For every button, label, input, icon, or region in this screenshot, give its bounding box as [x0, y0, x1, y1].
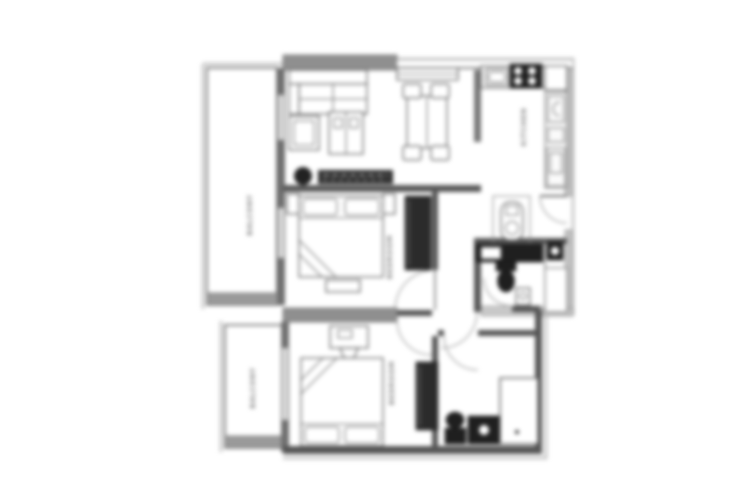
dresser-lower	[330, 326, 368, 348]
wall-kitchen-divider	[474, 70, 481, 142]
door-arc-bedroom-middle	[395, 270, 435, 310]
wall-mid-thick	[283, 308, 397, 322]
burner-2	[528, 67, 536, 75]
label-balcony-top: BALCONY	[246, 194, 254, 236]
dining-chair-2	[431, 84, 449, 98]
bathroom-upper	[476, 242, 567, 312]
burner-4	[528, 77, 536, 85]
wall-bedroom-mid-bottom	[397, 310, 432, 316]
door-arc-bedroom-lower	[397, 320, 432, 355]
entry-door-arc	[540, 196, 567, 223]
doors	[395, 270, 512, 370]
toilet-lower-bowl	[446, 412, 464, 428]
label-bedroom-lower: BEDROOM	[388, 361, 396, 405]
wardrobe-lower	[416, 362, 438, 430]
dining-chair-3	[403, 146, 421, 160]
wall-bath-lower-top-b	[478, 330, 540, 336]
door-arc-hall	[441, 312, 477, 348]
dining-chair-4	[431, 146, 449, 160]
bed-lower	[301, 358, 383, 446]
wall-bottom-exterior	[283, 446, 542, 454]
tv-console	[318, 170, 393, 184]
fridge	[545, 66, 567, 90]
dining-chair-1	[403, 84, 421, 98]
toilet-lower-tank	[445, 428, 466, 444]
living-room	[289, 68, 458, 185]
shower	[500, 378, 538, 444]
floor-plan-canvas: BALCONY KITCHEN BEDROOM BEDROOM BALCONY	[0, 0, 750, 500]
toilet-upper-bowl	[498, 270, 515, 292]
burner-3	[514, 77, 522, 85]
balcony-top-rail	[207, 293, 283, 305]
sofa-armrest	[289, 84, 299, 114]
shaft-lower	[545, 268, 567, 312]
burner-1	[514, 67, 522, 75]
vanity-lower-sink	[479, 425, 489, 435]
balcony-bottom-rail	[225, 436, 287, 448]
basin-small	[516, 288, 530, 305]
wall-living-bedroom	[283, 185, 481, 192]
label-kitchen: KITCHEN	[520, 108, 528, 147]
bathroom-lower	[445, 378, 538, 444]
toilet-upper-tank	[496, 262, 516, 271]
bedroom-middle	[287, 194, 431, 292]
entry-hall	[501, 196, 567, 240]
door-arc-bathroom-lower	[444, 336, 478, 370]
bedroom-lower	[301, 326, 438, 446]
sofa-back	[289, 70, 367, 84]
vanity-upper-sink	[481, 247, 501, 259]
wall-top-thick	[283, 55, 397, 70]
balcony-top-walls	[207, 68, 277, 305]
label-balcony-bottom: BALCONY	[249, 367, 257, 409]
wall-bedroom-corridor	[432, 192, 438, 270]
plant-icon	[294, 167, 312, 185]
label-bedroom-middle: BEDROOM	[386, 235, 394, 279]
floor-plan-svg: BALCONY KITCHEN BEDROOM BEDROOM BALCONY	[0, 0, 750, 500]
nightstand-left	[287, 194, 299, 214]
nightstand-right	[383, 194, 395, 214]
bed-middle-bench	[326, 280, 360, 292]
wall-bath-lower-top-a	[438, 330, 444, 336]
stool-lower	[340, 348, 358, 358]
bed-middle	[299, 196, 383, 277]
shower-drain	[515, 430, 519, 434]
shaft-unit-dial	[551, 247, 559, 255]
